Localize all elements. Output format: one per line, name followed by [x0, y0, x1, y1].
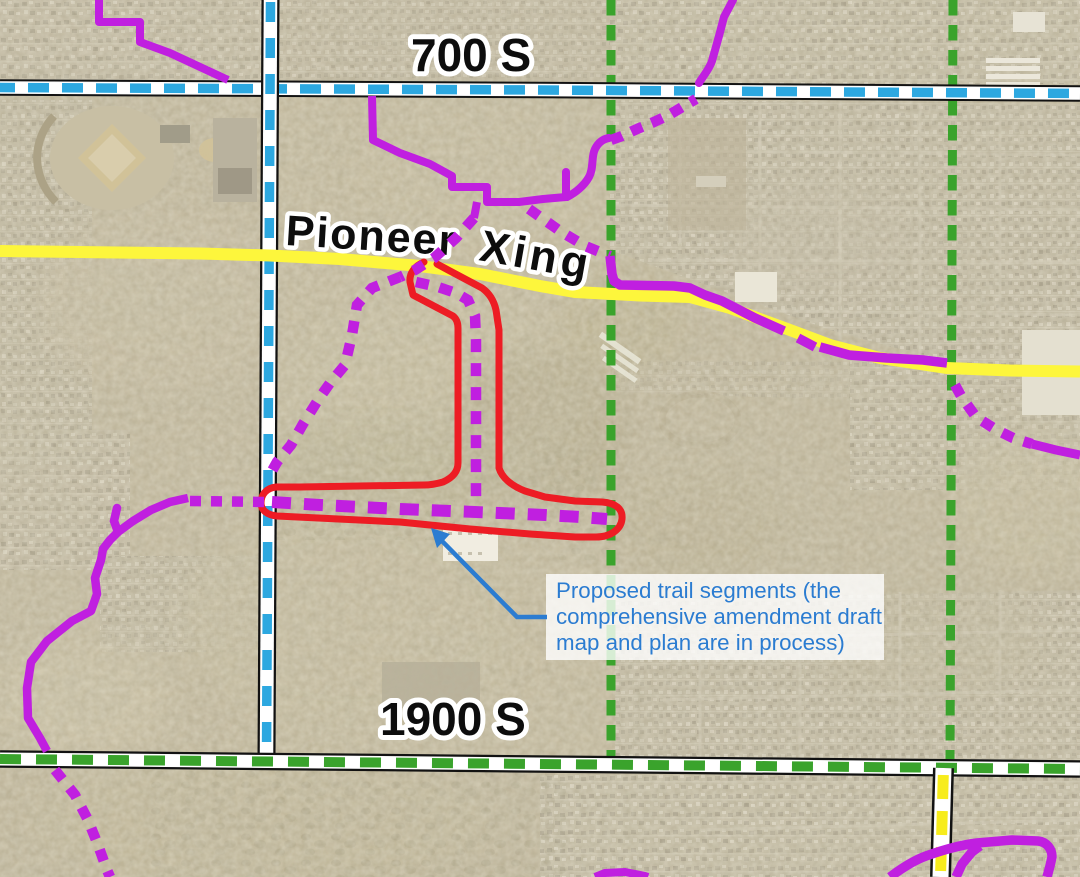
svg-text:map and plan are in process): map and plan are in process): [556, 630, 845, 655]
svg-text:comprehensive amendment draft: comprehensive amendment draft: [556, 604, 883, 629]
svg-text:1900 S: 1900 S: [380, 693, 526, 745]
svg-text:700 S: 700 S: [411, 29, 531, 81]
svg-text:Proposed trail segments (the: Proposed trail segments (the: [556, 578, 841, 603]
